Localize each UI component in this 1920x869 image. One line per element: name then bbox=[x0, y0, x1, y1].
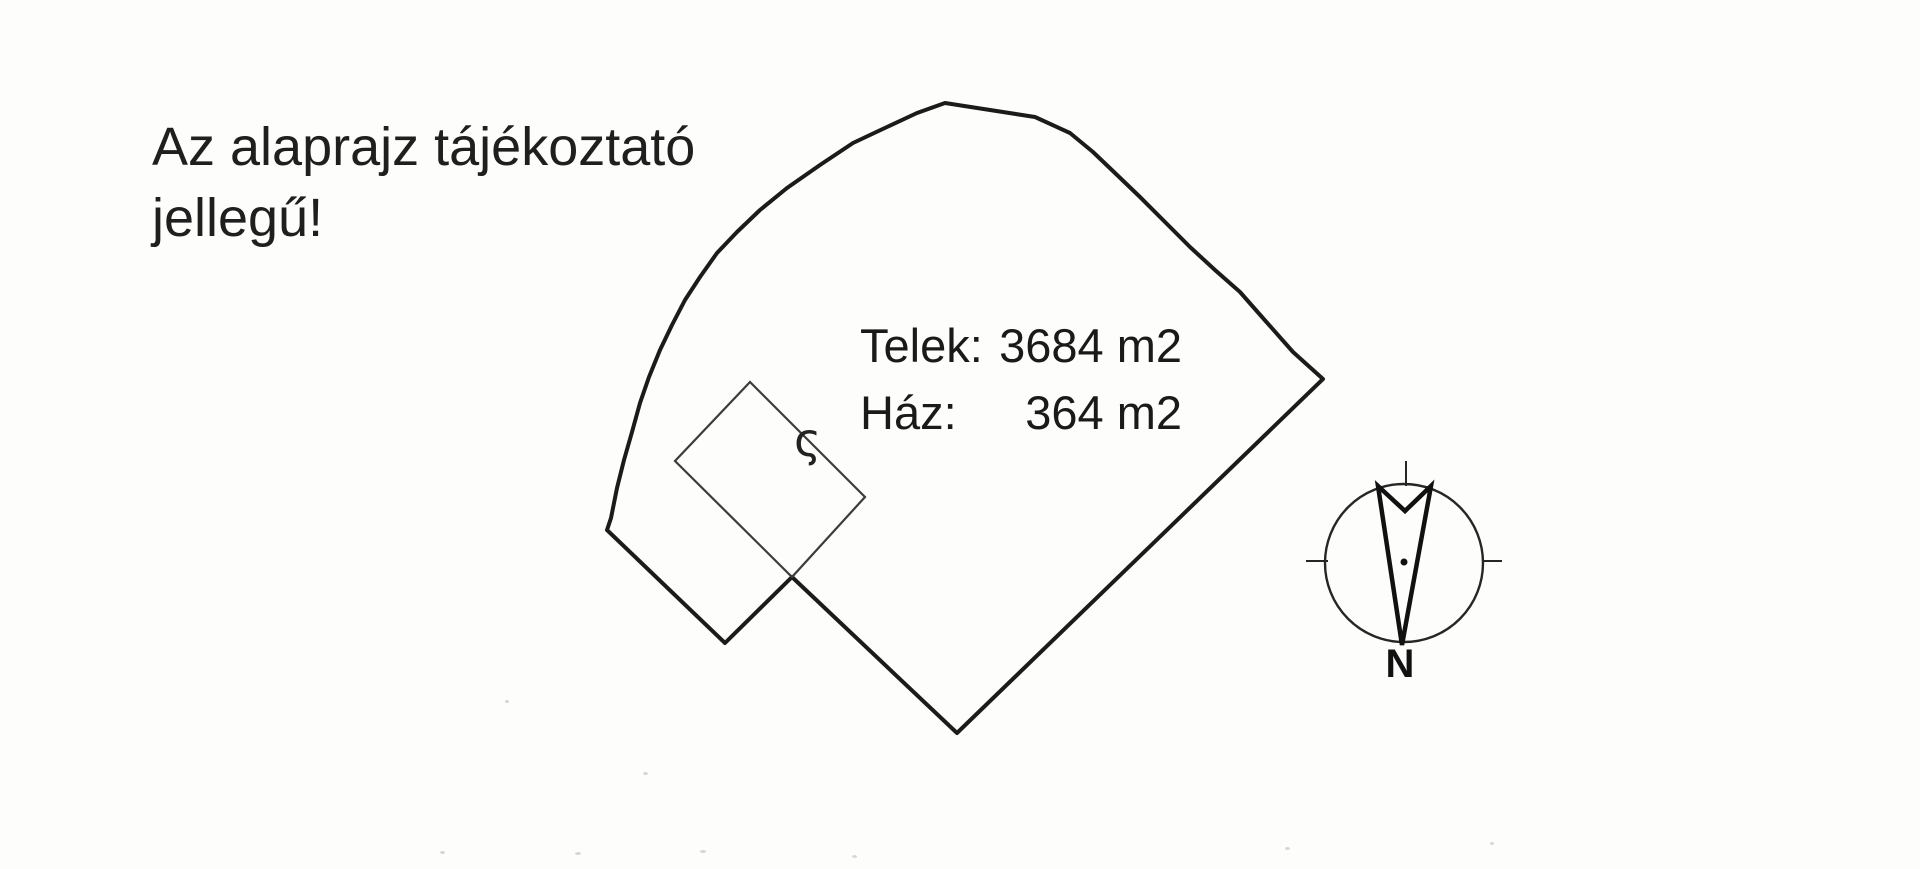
compass-needle bbox=[1378, 486, 1431, 645]
scan-speckle bbox=[643, 772, 648, 775]
plot-area-label: Telek: bbox=[860, 312, 983, 379]
compass-north-icon: N bbox=[1306, 461, 1502, 686]
compass-pivot-dot bbox=[1401, 559, 1408, 566]
scan-speckle bbox=[440, 851, 445, 854]
house-area-label: Ház: bbox=[860, 379, 957, 446]
scan-speckle bbox=[1490, 842, 1494, 845]
house-footprint-outline bbox=[675, 382, 865, 577]
house-area-value: 364 m2 bbox=[1025, 379, 1182, 446]
scan-speckle bbox=[700, 850, 706, 853]
floor-plan-page: ς N Az alaprajz tájékoztató jellegű! Tel… bbox=[0, 0, 1920, 869]
compass-north-label: N bbox=[1386, 642, 1415, 686]
scan-speckle bbox=[575, 852, 581, 855]
scan-speckle bbox=[1285, 847, 1290, 850]
plot-area-value: 3684 m2 bbox=[999, 312, 1182, 379]
disclaimer-line-1: Az alaprajz tájékoztató bbox=[152, 112, 695, 183]
house-area-row: Ház: 364 m2 bbox=[860, 379, 1182, 446]
disclaimer-note: Az alaprajz tájékoztató jellegű! bbox=[152, 112, 695, 254]
disclaimer-line-2: jellegű! bbox=[152, 183, 695, 254]
survey-squiggle-mark: ς bbox=[794, 413, 821, 467]
area-summary: Telek: 3684 m2 Ház: 364 m2 bbox=[860, 312, 1182, 446]
scan-speckle bbox=[505, 700, 509, 703]
plot-area-row: Telek: 3684 m2 bbox=[860, 312, 1182, 379]
scan-speckle bbox=[852, 855, 857, 858]
